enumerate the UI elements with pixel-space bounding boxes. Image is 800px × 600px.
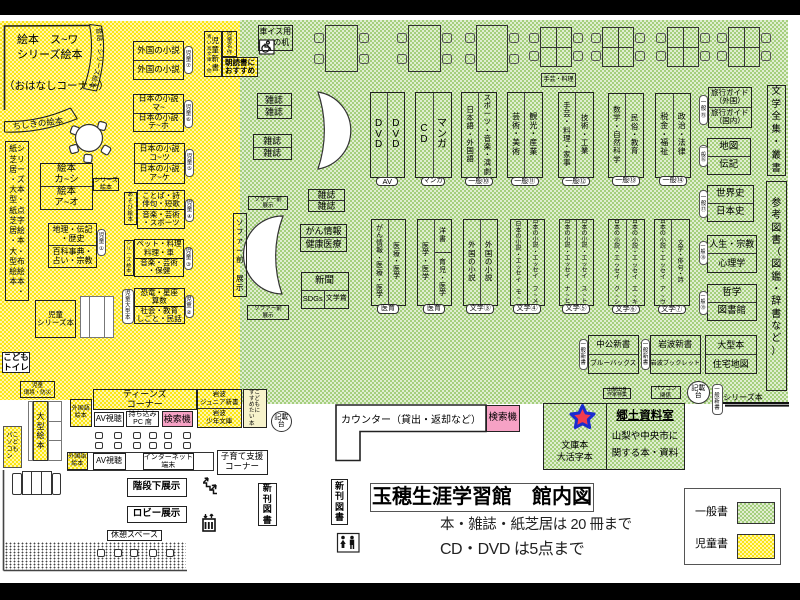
svg-text:ちしきの絵本: ちしきの絵本 [12,115,64,131]
